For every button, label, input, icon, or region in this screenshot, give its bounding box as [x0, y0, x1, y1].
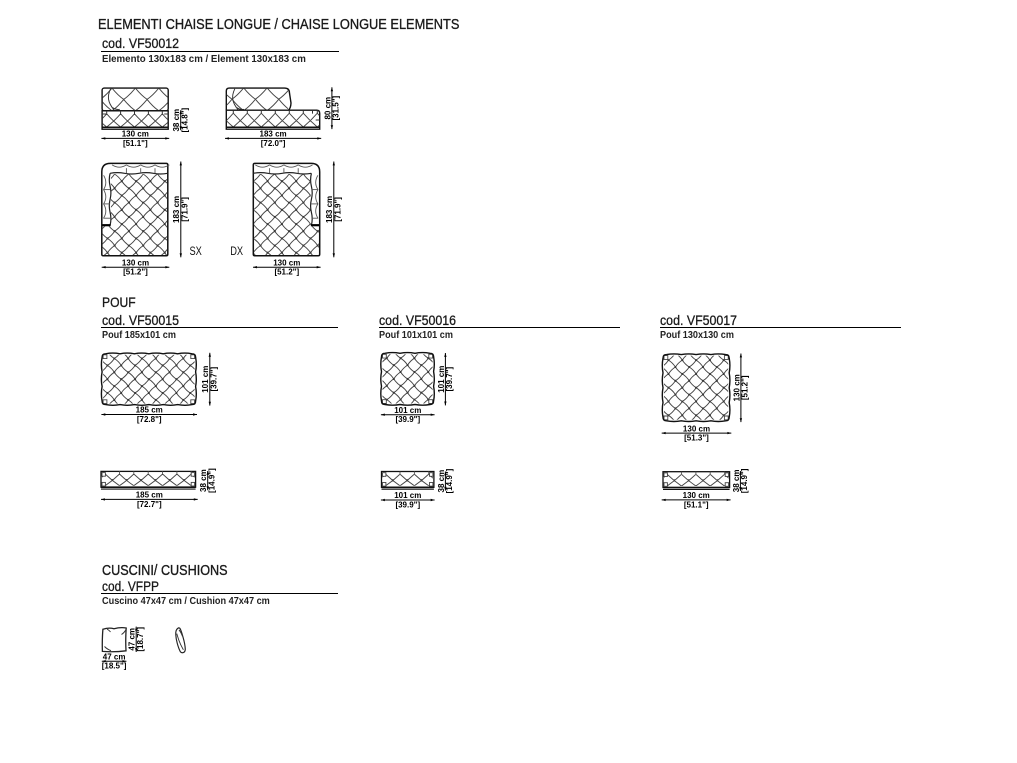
svg-text:[72.8"]: [72.8"]: [137, 415, 162, 424]
svg-text:[14.9"]: [14.9"]: [740, 468, 749, 493]
svg-text:183 cm: 183 cm: [260, 130, 287, 139]
svg-text:[39.9"]: [39.9"]: [395, 415, 420, 424]
svg-text:[14.9"]: [14.9"]: [207, 468, 216, 493]
svg-text:[39.7"]: [39.7"]: [445, 367, 454, 392]
svg-text:SX: SX: [190, 245, 202, 259]
svg-text:47 cm: 47 cm: [103, 652, 126, 661]
svg-text:[51.2"]: [51.2"]: [123, 268, 148, 277]
svg-text:[18.7"]: [18.7"]: [136, 627, 145, 652]
svg-text:130 cm: 130 cm: [683, 424, 710, 433]
svg-text:130 cm: 130 cm: [122, 258, 149, 267]
svg-text:[51.2"]: [51.2"]: [274, 268, 299, 277]
svg-text:101 cm: 101 cm: [394, 491, 421, 500]
svg-text:130 cm: 130 cm: [122, 130, 149, 139]
svg-text:[72.0"]: [72.0"]: [261, 139, 286, 148]
svg-text:[39.9"]: [39.9"]: [395, 500, 420, 509]
svg-text:[51.1"]: [51.1"]: [684, 500, 709, 509]
svg-text:[71.9"]: [71.9"]: [180, 197, 189, 222]
svg-text:185 cm: 185 cm: [136, 406, 163, 415]
svg-text:[71.9"]: [71.9"]: [333, 197, 342, 222]
svg-text:[14.8"]: [14.8"]: [180, 108, 189, 133]
svg-text:185 cm: 185 cm: [136, 491, 163, 500]
svg-text:[51.2"]: [51.2"]: [741, 375, 750, 400]
svg-text:[72.7"]: [72.7"]: [137, 500, 162, 509]
svg-text:[14.9"]: [14.9"]: [445, 468, 454, 493]
svg-text:[51.1"]: [51.1"]: [123, 139, 148, 148]
svg-text:[31.5"]: [31.5"]: [332, 96, 341, 121]
svg-text:[18.5"]: [18.5"]: [102, 662, 127, 671]
svg-text:130 cm: 130 cm: [683, 491, 710, 500]
svg-text:101 cm: 101 cm: [394, 406, 421, 415]
svg-text:[51.3"]: [51.3"]: [684, 434, 709, 443]
svg-text:DX: DX: [230, 245, 243, 259]
svg-text:[39.7"]: [39.7"]: [209, 367, 218, 392]
svg-text:130 cm: 130 cm: [273, 258, 300, 267]
